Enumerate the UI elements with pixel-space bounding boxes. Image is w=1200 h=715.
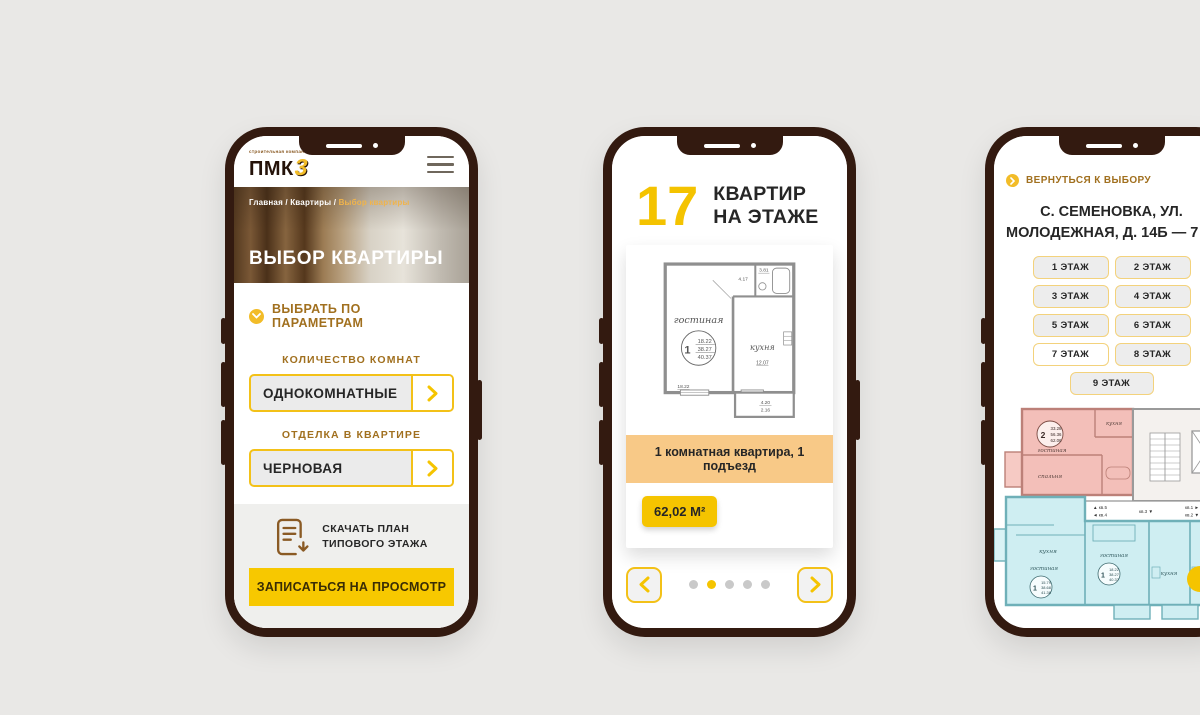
speaker-grill: [326, 144, 362, 148]
svg-text:кухня: кухня: [1106, 421, 1122, 427]
svg-text:◄ кв.4: ◄ кв.4: [1093, 513, 1108, 518]
pagination-dot-4[interactable]: [743, 580, 752, 589]
prev-button[interactable]: [626, 567, 662, 603]
download-document-icon: [275, 517, 311, 557]
chevron-right-icon: [411, 451, 452, 485]
svg-text:гостиная: гостиная: [1100, 553, 1128, 559]
chevron-left-icon: [639, 576, 650, 593]
phone1-screen: строительная компания ПМК 3 Главная / Кв…: [234, 136, 469, 628]
svg-text:2: 2: [1041, 430, 1046, 440]
phone-notch: [1059, 136, 1165, 155]
flat-type-banner: 1 комнатная квартира, 1 подъезд: [626, 435, 833, 483]
svg-text:кухня: кухня: [1039, 549, 1057, 555]
svg-text:2.16: 2.16: [760, 407, 770, 413]
floor-button-3[interactable]: 3 ЭТАЖ: [1033, 285, 1109, 308]
filter-heading[interactable]: ВЫБРАТЬ ПО ПАРАМЕТРАМ: [249, 302, 454, 330]
chevron-right-icon: [810, 576, 821, 593]
hero-banner: Главная / Квартиры / Выбор квартиры ВЫБО…: [234, 187, 469, 283]
footer-panel: СКАЧАТЬ ПЛАН ТИПОВОГО ЭТАЖА ЗАПИСАТЬСЯ Н…: [234, 504, 469, 628]
back-to-selection-link[interactable]: ВЕРНУТЬСЯ К ВЫБОРУ: [1006, 174, 1200, 187]
side-button: [221, 318, 226, 344]
svg-text:4.20: 4.20: [760, 400, 770, 406]
phone-mockup-3: ВЕРНУТЬСЯ К ВЫБОРУ С. СЕМЕНОВКА, УЛ. МОЛ…: [985, 127, 1200, 637]
phone3-screen: ВЕРНУТЬСЯ К ВЫБОРУ С. СЕМЕНОВКА, УЛ. МОЛ…: [994, 136, 1200, 628]
next-button[interactable]: [797, 567, 833, 603]
volume-down-button: [981, 420, 986, 465]
floor-plan-7: 2 33.28 56.36 62.06 гостиная спальня кух…: [994, 407, 1200, 628]
svg-text:кв.2 ▼: кв.2 ▼: [1185, 513, 1199, 518]
floor-button-5[interactable]: 5 ЭТАЖ: [1033, 314, 1109, 337]
floor-button-2[interactable]: 2 ЭТАЖ: [1115, 256, 1191, 279]
phone-mockup-1: строительная компания ПМК 3 Главная / Кв…: [225, 127, 478, 637]
svg-text:гостиная: гостиная: [1038, 448, 1067, 454]
flat-plan: гостиная 18.22 38.27 40.37 1 кухня 12.07…: [626, 245, 833, 435]
volume-up-button: [981, 362, 986, 407]
volume-up-button: [599, 362, 604, 407]
svg-text:12.07: 12.07: [756, 360, 769, 366]
power-button: [477, 380, 482, 440]
pagination-dot-5[interactable]: [761, 580, 770, 589]
svg-text:56.36: 56.36: [1051, 432, 1063, 437]
flats-count-number: 17: [636, 182, 698, 230]
phone2-screen: 17 КВАРТИР НА ЭТАЖЕ: [612, 136, 847, 628]
finish-type-value: ЧЕРНОВАЯ: [251, 461, 342, 476]
svg-text:41.36: 41.36: [1041, 590, 1051, 595]
svg-text:гостиная: гостиная: [673, 314, 723, 325]
pagination-dots: [689, 580, 770, 589]
svg-text:1: 1: [1033, 586, 1037, 593]
camera-dot: [373, 143, 378, 148]
rooms-count-label: КОЛИЧЕСТВО КОМНАТ: [249, 354, 454, 366]
phone-notch: [299, 136, 405, 155]
side-button: [599, 318, 604, 344]
speaker-grill: [1086, 144, 1122, 148]
svg-text:кв.1 ►: кв.1 ►: [1185, 505, 1199, 510]
floor-button-1[interactable]: 1 ЭТАЖ: [1033, 256, 1109, 279]
svg-text:1: 1: [684, 344, 690, 356]
svg-text:гостиная: гостиная: [1030, 566, 1058, 572]
finish-type-label: ОТДЕЛКА В КВАРТИРЕ: [249, 429, 454, 441]
svg-text:кухня: кухня: [1161, 571, 1178, 577]
filter-heading-label: ВЫБРАТЬ ПО ПАРАМЕТРАМ: [272, 302, 454, 330]
svg-text:62.06: 62.06: [1051, 438, 1063, 443]
volume-up-button: [221, 362, 226, 407]
carousel-pagination: [626, 567, 833, 603]
svg-text:спальня: спальня: [1038, 474, 1062, 480]
back-link-label: ВЕРНУТЬСЯ К ВЫБОРУ: [1026, 175, 1151, 186]
logo-text: ПМК: [249, 159, 294, 179]
camera-dot: [751, 143, 756, 148]
page-title: ВЫБОР КВАРТИРЫ: [249, 248, 443, 270]
download-plan-link[interactable]: СКАЧАТЬ ПЛАН ТИПОВОГО ЭТАЖА: [275, 517, 428, 557]
svg-text:18.22: 18.22: [697, 339, 711, 345]
svg-text:▲ кв.5: ▲ кв.5: [1093, 505, 1108, 510]
svg-text:4.17: 4.17: [738, 276, 748, 282]
speaker-grill: [704, 144, 740, 148]
breadcrumb-current: Выбор квартиры: [339, 198, 410, 207]
svg-text:33.28: 33.28: [1051, 426, 1063, 431]
flats-count-label: КВАРТИР НА ЭТАЖЕ: [713, 183, 818, 229]
filter-section: ВЫБРАТЬ ПО ПАРАМЕТРАМ КОЛИЧЕСТВО КОМНАТ …: [234, 283, 469, 487]
book-viewing-button[interactable]: ЗАПИСАТЬСЯ НА ПРОСМОТР: [249, 568, 454, 606]
building-title: С. СЕМЕНОВКА, УЛ. МОЛОДЕЖНАЯ, Д. 14Б — 7…: [1006, 202, 1200, 244]
svg-text:3.81: 3.81: [759, 267, 769, 273]
pagination-dot-3[interactable]: [725, 580, 734, 589]
phone-mockup-2: 17 КВАРТИР НА ЭТАЖЕ: [603, 127, 856, 637]
floor-button-7-active[interactable]: 7 ЭТАЖ: [1033, 343, 1109, 366]
breadcrumb: Главная / Квартиры / Выбор квартиры: [249, 198, 454, 207]
logo[interactable]: строительная компания ПМК 3: [249, 150, 310, 179]
logo-digit: 3: [293, 156, 310, 179]
chevron-right-icon: [411, 376, 452, 410]
power-button: [855, 380, 860, 440]
svg-text:38.27: 38.27: [697, 347, 711, 353]
rooms-count-value: ОДНОКОМНАТНЫЕ: [251, 386, 397, 401]
floor-plan-drawing: 2 33.28 56.36 62.06 гостиная спальня кух…: [994, 407, 1200, 625]
page-background: строительная компания ПМК 3 Главная / Кв…: [0, 0, 1200, 715]
flat-card[interactable]: гостиная 18.22 38.27 40.37 1 кухня 12.07…: [626, 245, 833, 548]
chevron-right-icon: [1006, 174, 1019, 187]
floor-selector: 1 ЭТАЖ 2 ЭТАЖ 3 ЭТАЖ 4 ЭТАЖ 5 ЭТАЖ 6 ЭТА…: [1006, 256, 1200, 366]
svg-text:1: 1: [1101, 573, 1105, 580]
svg-text:кухня: кухня: [750, 342, 775, 352]
floor-button-6[interactable]: 6 ЭТАЖ: [1115, 314, 1191, 337]
floor-button-8[interactable]: 8 ЭТАЖ: [1115, 343, 1191, 366]
svg-text:кв.3 ▼: кв.3 ▼: [1139, 509, 1153, 514]
download-plan-label: СКАЧАТЬ ПЛАН ТИПОВОГО ЭТАЖА: [322, 522, 428, 551]
breadcrumb-links[interactable]: Главная / Квартиры /: [249, 198, 336, 207]
chevron-down-icon: [249, 309, 264, 324]
svg-text:40.37: 40.37: [697, 355, 711, 361]
pagination-dot-1[interactable]: [689, 580, 698, 589]
pagination-dot-2-active[interactable]: [707, 580, 716, 589]
volume-down-button: [221, 420, 226, 465]
svg-text:18.22: 18.22: [677, 384, 689, 390]
area-badge: 62,02 М²: [642, 496, 717, 527]
volume-down-button: [599, 420, 604, 465]
phone-notch: [677, 136, 783, 155]
area-badge-row: 62,02 М²: [626, 483, 833, 548]
rooms-count-select[interactable]: ОДНОКОМНАТНЫЕ: [249, 374, 454, 412]
camera-dot: [1133, 143, 1138, 148]
svg-text:40.37: 40.37: [1109, 577, 1119, 582]
menu-icon[interactable]: [427, 156, 454, 173]
side-button: [981, 318, 986, 344]
finish-type-select[interactable]: ЧЕРНОВАЯ: [249, 449, 454, 487]
floor-button-4[interactable]: 4 ЭТАЖ: [1115, 285, 1191, 308]
floor-button-9[interactable]: 9 ЭТАЖ: [1070, 372, 1154, 395]
floor-plan-drawing: гостиная 18.22 38.27 40.37 1 кухня 12.07…: [654, 259, 806, 427]
